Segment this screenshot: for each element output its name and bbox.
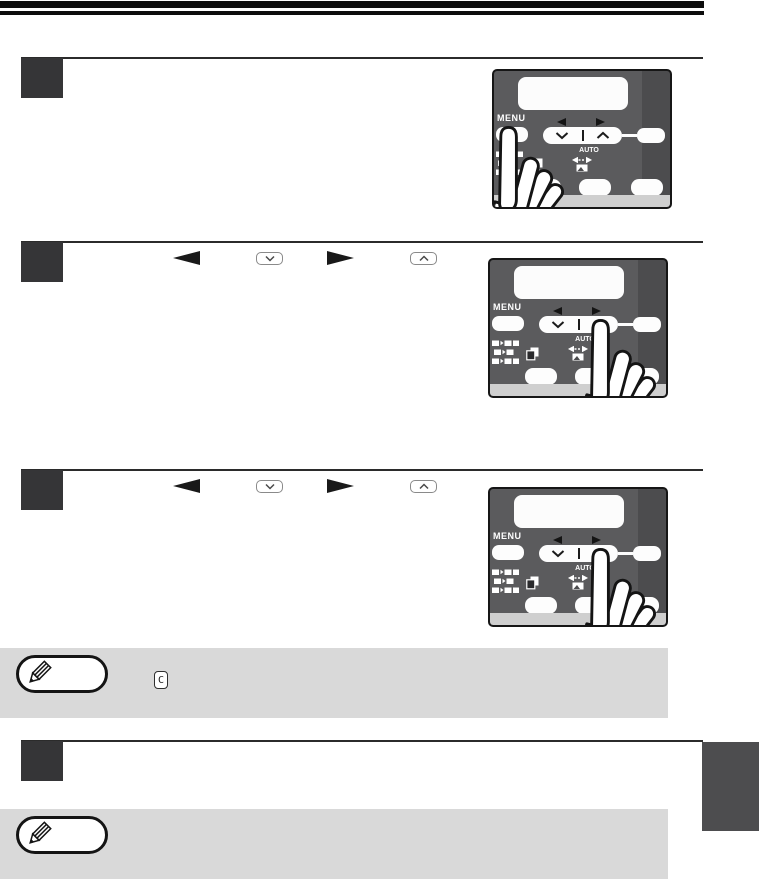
menu-button bbox=[492, 316, 524, 331]
pointing-hand bbox=[576, 547, 660, 627]
pencil-icon bbox=[23, 659, 53, 689]
rocker-divider bbox=[582, 130, 584, 141]
step-2-illustration: MENU AUTO bbox=[488, 258, 668, 398]
note-badge bbox=[16, 816, 108, 854]
pointing-hand bbox=[492, 125, 568, 209]
clear-key-icon: C bbox=[154, 671, 168, 689]
up-select-key-icon bbox=[410, 480, 437, 493]
copy-ratio-icons bbox=[492, 339, 522, 366]
step-3-illustration: MENU AUTO bbox=[488, 487, 668, 627]
step-1-rule bbox=[21, 57, 703, 59]
chapter-tab bbox=[702, 742, 759, 831]
step-3-rule bbox=[21, 469, 703, 471]
lcd-display bbox=[514, 495, 624, 528]
left-arrow-icon bbox=[553, 307, 562, 315]
copy-ratio-icon-row bbox=[492, 577, 520, 585]
down-select-key-icon bbox=[256, 252, 283, 265]
menu-button-label: MENU bbox=[497, 113, 526, 123]
right-arrow-key-icon bbox=[327, 479, 354, 493]
manual-page: MENU AUTO bbox=[0, 0, 759, 879]
panel-button-3 bbox=[631, 179, 663, 196]
clear-key-label: C bbox=[158, 675, 164, 686]
right-arrow-icon bbox=[592, 536, 601, 544]
chevron-up-icon bbox=[595, 131, 611, 140]
step-3-number-box bbox=[21, 470, 63, 510]
copy-ratio-icon-row bbox=[492, 568, 520, 576]
panel-button-1 bbox=[525, 368, 557, 385]
step-1-illustration: MENU AUTO bbox=[492, 69, 672, 209]
button-connector-line bbox=[622, 134, 637, 137]
pencil-icon bbox=[23, 820, 53, 850]
step-2-rule bbox=[21, 241, 703, 243]
chevron-down-icon bbox=[550, 320, 566, 329]
copy-ratio-icon-row bbox=[492, 348, 520, 356]
menu-button-label: MENU bbox=[493, 531, 522, 541]
step-4-number-box bbox=[21, 741, 63, 781]
left-arrow-icon bbox=[553, 536, 562, 544]
menu-button bbox=[492, 545, 524, 560]
copy-ratio-icon-row bbox=[492, 339, 520, 347]
lcd-display bbox=[518, 77, 628, 110]
copy-ratio-icons bbox=[492, 568, 522, 595]
ok-button bbox=[637, 128, 665, 143]
down-select-key-icon bbox=[256, 480, 283, 493]
note-box bbox=[0, 809, 668, 879]
pointing-hand bbox=[576, 318, 660, 398]
note-badge bbox=[16, 655, 108, 693]
panel-button-1 bbox=[525, 597, 557, 614]
control-panel-illustration: MENU AUTO bbox=[488, 487, 668, 627]
control-panel-illustration: MENU AUTO bbox=[488, 258, 668, 398]
step-2-number-box bbox=[21, 242, 63, 282]
control-panel-illustration: MENU AUTO bbox=[492, 69, 672, 209]
lcd-display bbox=[514, 266, 624, 299]
right-arrow-key-icon bbox=[327, 251, 354, 265]
note-box bbox=[0, 648, 668, 718]
right-arrow-icon bbox=[596, 118, 605, 126]
header-rule-thin bbox=[0, 11, 704, 15]
header-rule-thick bbox=[0, 1, 704, 8]
step-4-rule bbox=[21, 740, 703, 742]
left-arrow-key-icon bbox=[173, 479, 200, 493]
left-arrow-key-icon bbox=[173, 251, 200, 265]
copy-ratio-icon-row bbox=[492, 357, 520, 365]
auto-label: AUTO bbox=[568, 147, 610, 154]
up-select-key-icon bbox=[410, 252, 437, 265]
panel-button-2 bbox=[579, 179, 611, 196]
right-arrow-icon bbox=[592, 307, 601, 315]
menu-button-label: MENU bbox=[493, 302, 522, 312]
step-1-number-box bbox=[21, 58, 63, 98]
copy-ratio-icon-row bbox=[492, 586, 520, 594]
chevron-down-icon bbox=[550, 549, 566, 558]
